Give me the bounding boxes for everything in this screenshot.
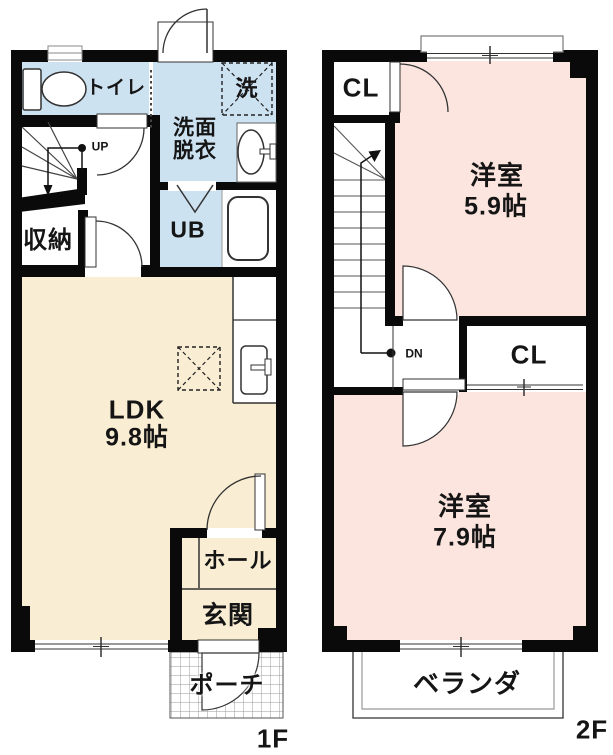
label-washroom-line2: 脱衣 <box>173 139 217 162</box>
label-toilet: トイレ <box>86 79 146 100</box>
label-ldk: LDK <box>109 396 165 425</box>
washbasin-icon <box>237 123 276 182</box>
label-floor-2f: 2F <box>576 716 608 745</box>
label-entrance: 玄関 <box>202 602 254 630</box>
label-bedroom1-size: 5.9帖 <box>464 193 528 221</box>
bedroom1-window <box>421 36 563 64</box>
label-stair-up: UP <box>92 140 109 153</box>
bathtub-icon <box>228 197 268 260</box>
floorplan-canvas: トイレ 洗面 脱衣 洗 UB 収納 LDK 9.8帖 ホール 玄関 ポーチ UP… <box>0 0 613 755</box>
label-stair-down: DN <box>405 347 422 360</box>
hall-ldk-door <box>85 217 142 277</box>
stairs-1f-icon <box>22 122 77 179</box>
kitchen-sink-icon <box>241 346 271 394</box>
label-washroom-line1: 洗面 <box>173 116 217 139</box>
label-closet-top: CL <box>343 74 380 103</box>
floorplan-linework <box>0 0 613 755</box>
label-washer: 洗 <box>235 77 258 101</box>
label-ldk-size: 9.8帖 <box>105 424 169 452</box>
label-bedroom2: 洋室 <box>438 493 492 522</box>
label-bedroom2-size: 7.9帖 <box>433 524 497 552</box>
label-bedroom1: 洋室 <box>470 162 524 191</box>
label-porch: ポーチ <box>190 673 265 699</box>
label-balcony: ベランダ <box>413 670 521 699</box>
label-floor-1f: 1F <box>257 725 289 754</box>
label-unit-bath: UB <box>170 217 205 242</box>
back-door <box>158 9 213 62</box>
label-closet-mid: CL <box>511 341 548 370</box>
label-hall: ホール <box>203 549 272 573</box>
toilet-window <box>48 46 82 60</box>
label-storage: 収納 <box>23 228 73 254</box>
